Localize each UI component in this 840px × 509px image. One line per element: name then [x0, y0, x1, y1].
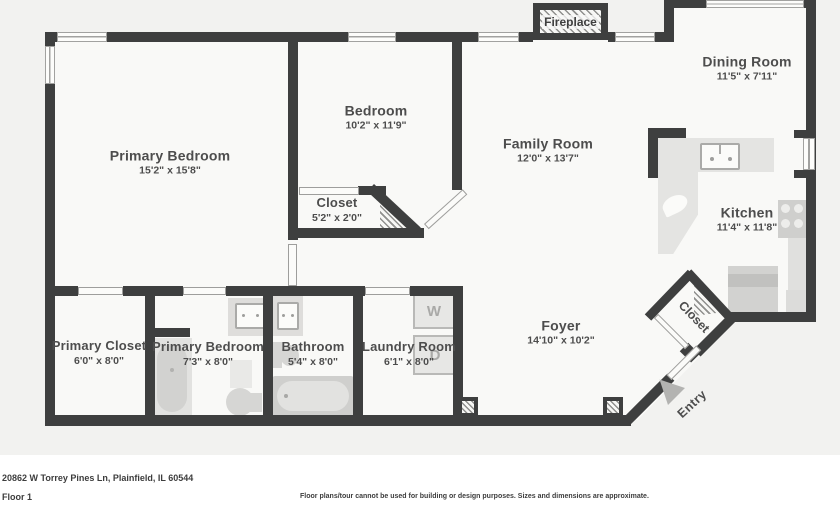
window [45, 46, 55, 84]
vanity-sink-dot [256, 314, 259, 317]
room-label-dining-room: Dining Room 11'5" x 7'11" [702, 53, 791, 82]
shower-drain [170, 368, 174, 372]
bathtub-faucet [284, 394, 288, 398]
floor-plan-page: W D Fireplace [0, 0, 840, 509]
room-label-family-room: Family Room 12'0" x 13'7" [503, 135, 593, 164]
washer-box: W [413, 293, 455, 329]
room-label-primary-bedroom-2: Primary Bedroom 7'3" x 8'0" [152, 340, 264, 368]
address-text: 20862 W Torrey Pines Ln, Plainfield, IL … [2, 473, 193, 483]
room-label-kitchen: Kitchen 11'4" x 11'8" [717, 204, 778, 233]
door-opening [299, 187, 359, 195]
room-label-primary-closet: Primary Closet 6'0" x 8'0" [52, 339, 147, 367]
door-opening [78, 287, 123, 295]
room-label-primary-bedroom: Primary Bedroom 15'2" x 15'8" [110, 147, 230, 176]
wall [794, 130, 816, 138]
bathroom-sink-dot [282, 314, 285, 317]
wall [263, 296, 273, 415]
door-opening [183, 287, 226, 295]
door-opening [288, 244, 297, 286]
refrigerator-band [728, 274, 778, 287]
wall [452, 42, 462, 190]
toilet-tank [250, 393, 262, 412]
stove-burner [794, 204, 803, 213]
fireplace: Fireplace [533, 3, 608, 40]
door-opening [365, 287, 410, 295]
wall [648, 128, 686, 138]
window [57, 32, 107, 42]
window [706, 0, 804, 8]
vanity-sink [235, 303, 265, 329]
window [803, 138, 815, 170]
wall [794, 170, 816, 178]
fireplace-label: Fireplace [542, 15, 599, 29]
washer-label: W [427, 303, 441, 320]
room-label-foyer: Foyer 14'10" x 10'2" [527, 317, 595, 346]
stove-burner [781, 219, 790, 228]
wall [726, 312, 816, 322]
vanity-sink-dot [242, 314, 245, 317]
stove-burner [781, 204, 790, 213]
column-post [458, 397, 478, 417]
window [478, 32, 519, 42]
room-fill-dining [674, 6, 806, 40]
wall [145, 328, 190, 337]
wall [123, 286, 183, 296]
wall [288, 228, 424, 238]
column-post [603, 397, 623, 417]
kitchen-sink-dot [728, 157, 732, 161]
wall [45, 286, 78, 296]
window [348, 32, 396, 42]
bathroom-sink-dot [291, 314, 294, 317]
room-label-bedroom: Bedroom 10'2" x 11'9" [345, 102, 408, 131]
bathroom-sink [277, 302, 299, 330]
wall [410, 286, 463, 296]
disclaimer-text: Floor plans/tour cannot be used for buil… [300, 493, 649, 500]
kitchen-step-counter [786, 290, 806, 312]
kitchen-sink-dot [710, 157, 714, 161]
room-label-laundry-room: Laundry Room 6'1" x 8'0" [362, 340, 456, 368]
wall [45, 415, 631, 426]
stove-burner [794, 219, 803, 228]
window [615, 32, 655, 42]
floor-text: Floor 1 [2, 492, 32, 502]
wall [288, 32, 298, 240]
wall [226, 286, 365, 296]
kitchen-sink-divider [719, 144, 721, 154]
room-label-bathroom: Bathroom 5'4" x 8'0" [282, 340, 345, 368]
room-label-closet: Closet 5'2" x 2'0" [312, 196, 362, 224]
